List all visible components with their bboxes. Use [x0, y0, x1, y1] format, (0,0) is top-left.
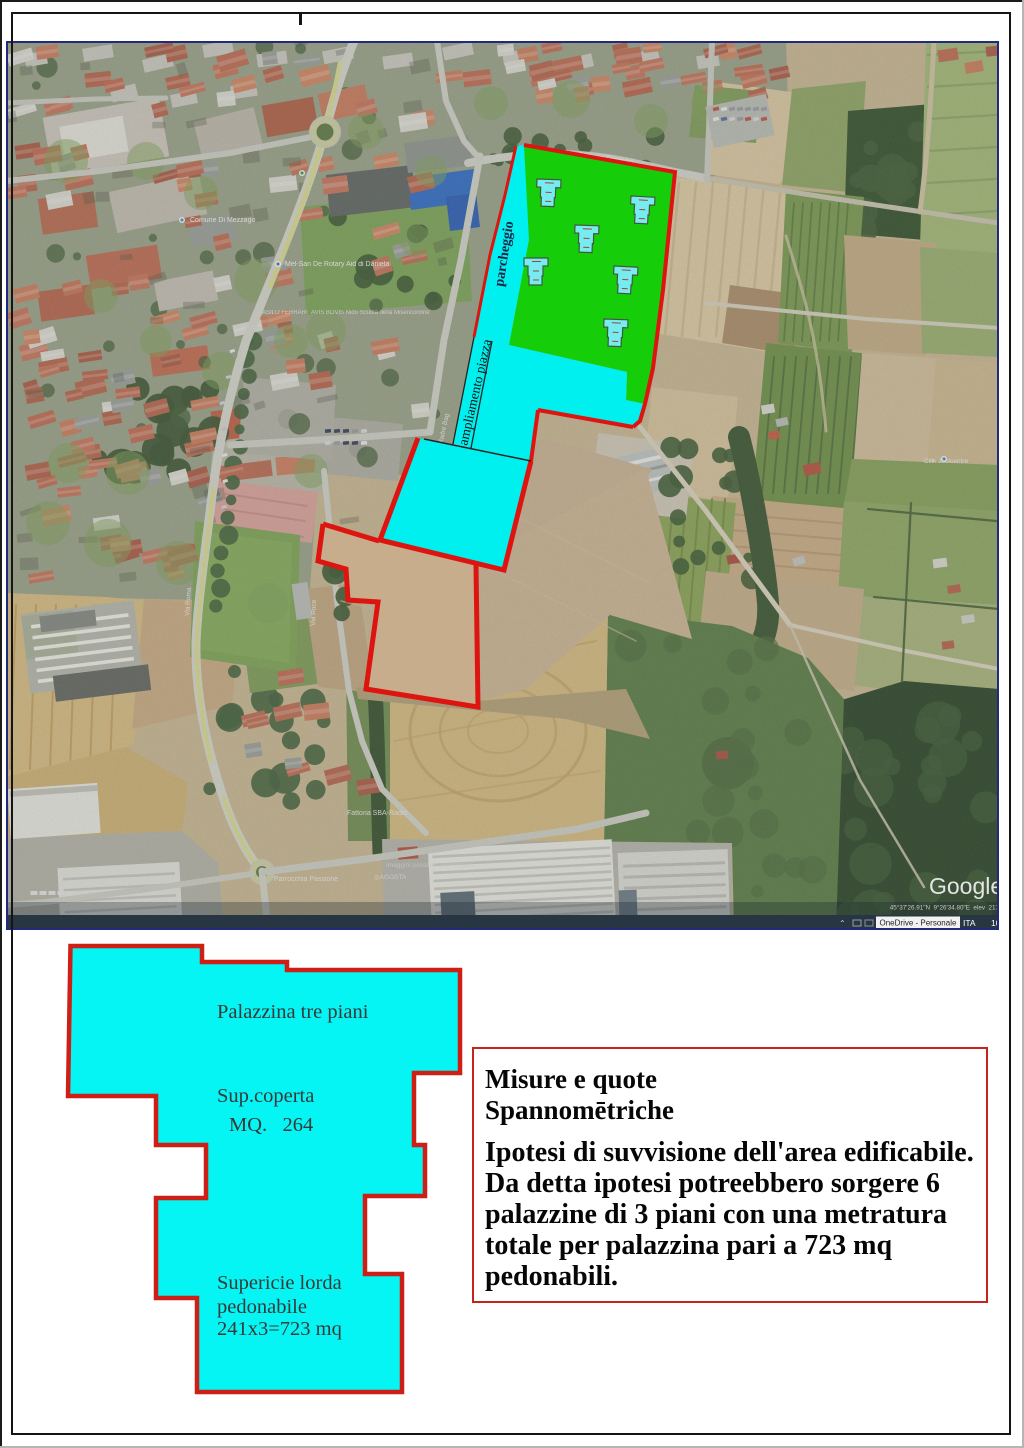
- svg-text:Palazzina tre piani: Palazzina tre piani: [217, 1001, 369, 1023]
- svg-text:pedonabile: pedonabile: [217, 1296, 307, 1318]
- svg-text:241x3=723 mq: 241x3=723 mq: [217, 1318, 342, 1340]
- svg-text:Sup.coperta: Sup.coperta: [217, 1085, 314, 1107]
- svg-text:Supericie lorda: Supericie lorda: [217, 1272, 342, 1294]
- svg-text:MQ. 264: MQ. 264: [229, 1114, 313, 1136]
